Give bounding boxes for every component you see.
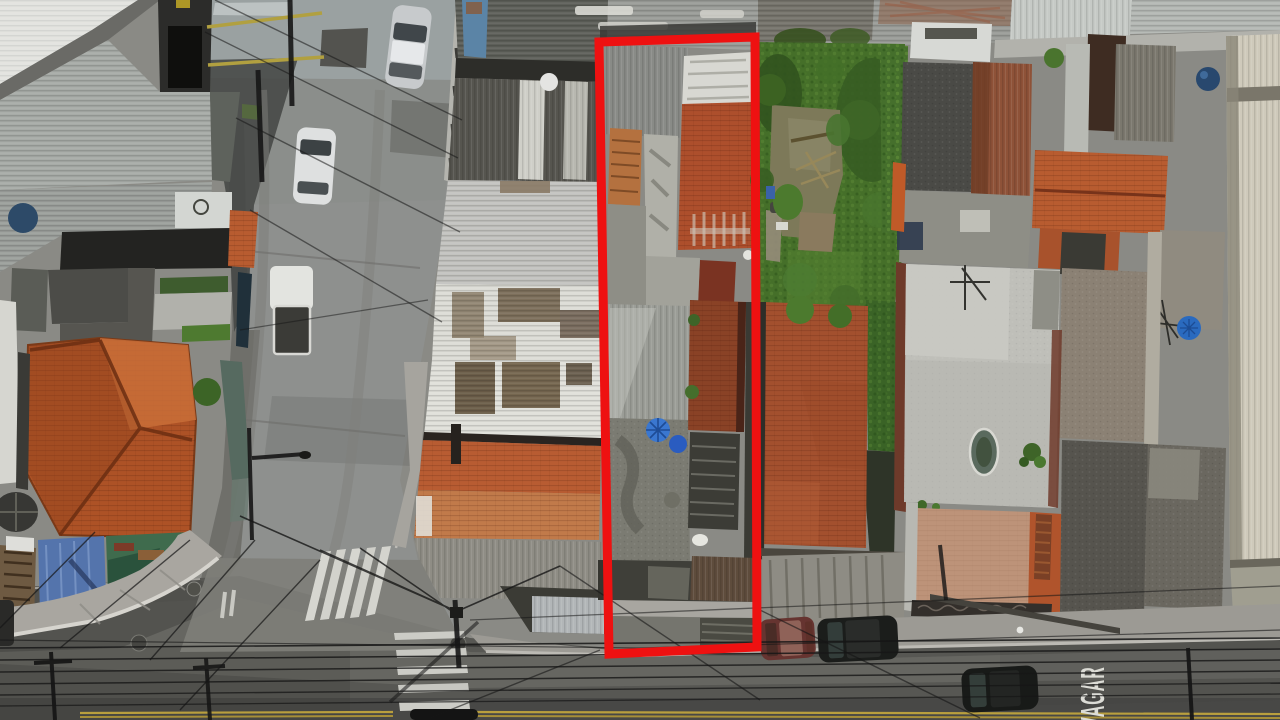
svg-text:DEVAGAR: DEVAGAR <box>1073 666 1111 720</box>
